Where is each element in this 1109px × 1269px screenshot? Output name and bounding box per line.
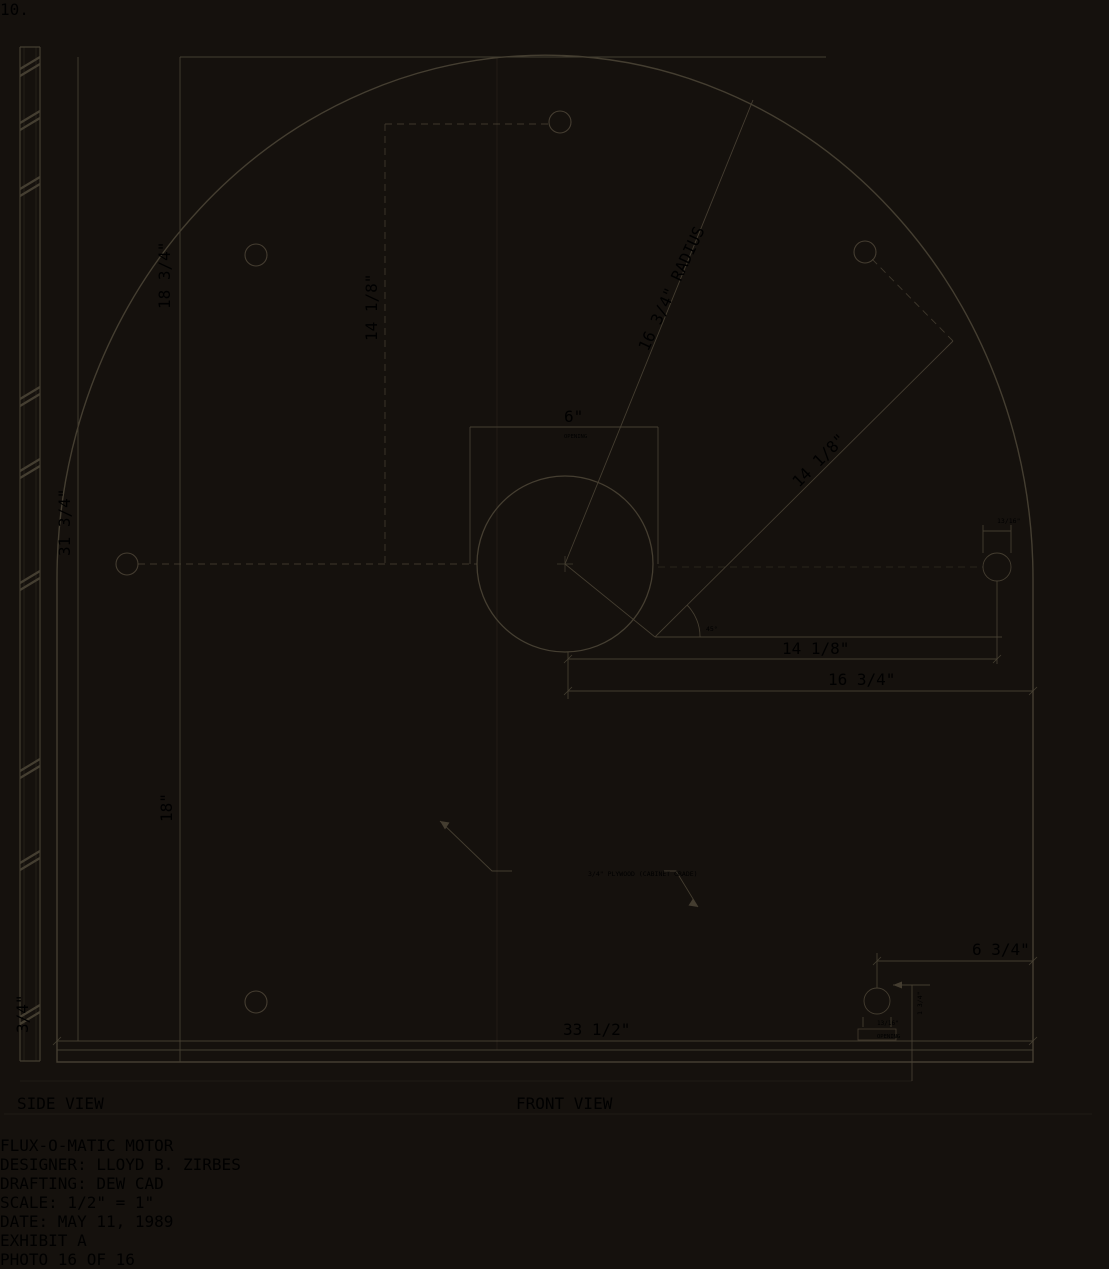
title-block: FLUX-O-MATIC MOTOR DESIGNER: LLOYD B. ZI… [0,1136,1109,1231]
exhibit-label: EXHIBIT A [0,1231,1109,1250]
blueprint-photo: { "photo": { "paper_color": "#c9c2b0", "… [0,0,1109,1113]
title-block-designer: DESIGNER: LLOYD B. ZIRBES [0,1155,1109,1174]
title-block-drafting: DRAFTING: DEW CAD [0,1174,1109,1193]
blueprint-paper [12,6,1100,1106]
title-block-scale: SCALE: 1/2" = 1" [0,1193,1109,1212]
title-block-date: DATE: MAY 11, 1989 [0,1212,1109,1231]
handwritten-note: PHOTO 16 OF 16 [0,1250,1109,1269]
title-block-title: FLUX-O-MATIC MOTOR [0,1136,1109,1155]
